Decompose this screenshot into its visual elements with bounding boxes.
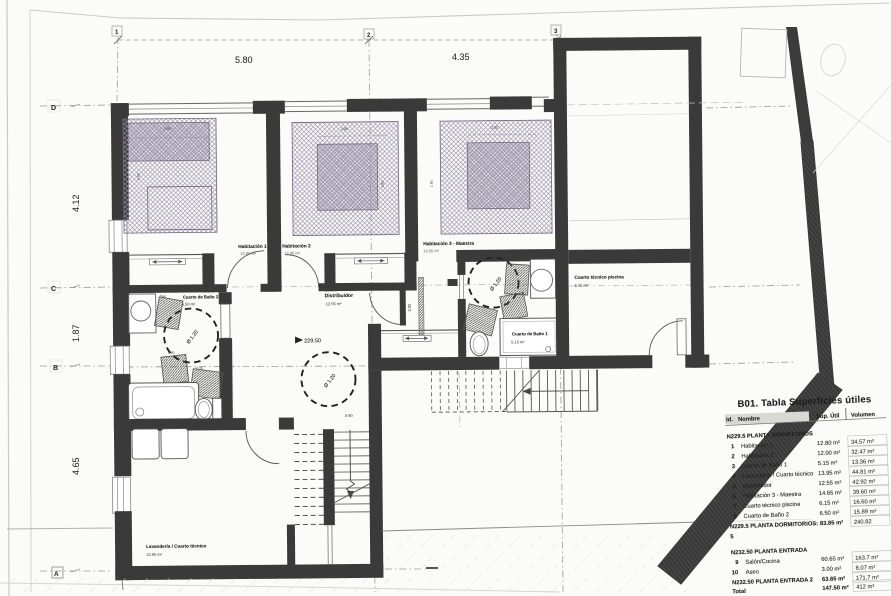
svg-text:Distribuidor: Distribuidor (325, 293, 353, 299)
svg-text:32.47 m³: 32.47 m³ (851, 449, 874, 456)
svg-text:63.65 m²: 63.65 m² (822, 575, 846, 583)
svg-text:163.7 m³: 163.7 m³ (855, 555, 878, 562)
svg-text:Nombre: Nombre (738, 416, 761, 423)
svg-text:13.95 m²: 13.95 m² (818, 470, 841, 477)
svg-text:2.60: 2.60 (136, 173, 140, 180)
svg-text:10: 10 (732, 570, 739, 576)
svg-text:6.15 m²: 6.15 m² (819, 500, 839, 507)
svg-text:D: D (51, 105, 56, 112)
svg-text:0.90: 0.90 (345, 413, 354, 418)
svg-text:12.55 m²: 12.55 m² (818, 480, 841, 487)
svg-text:Id.: Id. (726, 417, 733, 423)
svg-text:Lavandería / Cuarto técnico: Lavandería / Cuarto técnico (146, 543, 206, 549)
svg-text:Habitación 2: Habitación 2 (282, 243, 311, 249)
svg-text:13.36 m³: 13.36 m³ (852, 459, 875, 466)
svg-text:B: B (53, 365, 58, 372)
svg-text:5.15 m²: 5.15 m² (818, 460, 838, 467)
svg-text:Volumen: Volumen (851, 412, 876, 419)
svg-text:34.57 m³: 34.57 m³ (851, 439, 874, 446)
svg-text:Total: Total (732, 589, 746, 596)
svg-text:6.50 m²: 6.50 m² (819, 510, 839, 517)
svg-text:12.55 m²: 12.55 m² (326, 301, 343, 306)
svg-text:Aseo: Aseo (746, 569, 759, 575)
svg-text:2.80: 2.80 (164, 127, 171, 131)
svg-text:42.92 m³: 42.92 m³ (852, 479, 875, 486)
svg-text:4.35: 4.35 (452, 52, 470, 62)
svg-text:7: 7 (733, 504, 736, 510)
svg-text:2.80: 2.80 (341, 127, 348, 131)
svg-text:Sup. Útil: Sup. Útil (816, 412, 840, 420)
svg-text:229.50: 229.50 (304, 338, 321, 344)
svg-text:14.65 m²: 14.65 m² (423, 248, 440, 253)
svg-text:147.50 m²: 147.50 m² (822, 584, 849, 592)
svg-text:Habitación 1: Habitación 1 (741, 443, 773, 450)
svg-text:13.95 m²: 13.95 m² (146, 552, 163, 557)
svg-text:8.07 m³: 8.07 m³ (855, 565, 875, 572)
svg-text:12.00 m²: 12.00 m² (817, 450, 840, 457)
svg-text:C: C (51, 286, 56, 293)
svg-text:412 m³: 412 m³ (856, 584, 874, 591)
svg-text:39.60 m³: 39.60 m³ (853, 489, 876, 496)
svg-text:14.65 m²: 14.65 m² (819, 490, 842, 497)
svg-text:83.85 m²: 83.85 m² (820, 519, 844, 527)
svg-text:Habitación 1: Habitación 1 (238, 244, 267, 250)
svg-text:0.70: 0.70 (196, 366, 202, 370)
svg-text:0.90: 0.90 (407, 303, 412, 312)
svg-text:6.15 m²: 6.15 m² (575, 283, 589, 288)
svg-text:A: A (54, 571, 59, 578)
svg-text:12.80 m²: 12.80 m² (817, 440, 840, 447)
svg-text:1.80: 1.80 (430, 180, 434, 187)
svg-text:3.00 m²: 3.00 m² (822, 566, 842, 573)
svg-text:2: 2 (731, 454, 734, 460)
svg-text:Habitación 3 - Maestra: Habitación 3 - Maestra (423, 241, 474, 247)
svg-text:12.00 m²: 12.00 m² (284, 250, 301, 255)
svg-text:240.82: 240.82 (854, 519, 872, 526)
svg-text:Distribuidor: Distribuidor (742, 483, 772, 490)
svg-text:Cuarto de Baño 1: Cuarto de Baño 1 (512, 331, 548, 336)
svg-text:5.15 m²: 5.15 m² (511, 339, 525, 344)
svg-text:1.87: 1.87 (71, 324, 81, 342)
svg-text:4.65: 4.65 (71, 457, 81, 475)
svg-text:44.81 m³: 44.81 m³ (852, 469, 875, 476)
svg-text:12.80 m²: 12.80 m² (240, 251, 257, 256)
svg-text:1.80: 1.80 (381, 181, 385, 188)
svg-text:16.60 m³: 16.60 m³ (853, 499, 876, 506)
svg-text:Cuarto técnico piscina: Cuarto técnico piscina (574, 274, 624, 279)
svg-text:Cuarto de Baño 2: Cuarto de Baño 2 (183, 294, 219, 299)
svg-text:15.89 m³: 15.89 m³ (853, 509, 876, 516)
svg-text:60.65 m²: 60.65 m² (821, 556, 844, 563)
svg-text:Habitación 2: Habitación 2 (741, 453, 773, 460)
svg-text:6.50 m²: 6.50 m² (182, 301, 196, 306)
svg-text:2.80: 2.80 (491, 126, 498, 130)
svg-text:5.80: 5.80 (235, 55, 253, 65)
svg-text:4.12: 4.12 (71, 194, 81, 212)
